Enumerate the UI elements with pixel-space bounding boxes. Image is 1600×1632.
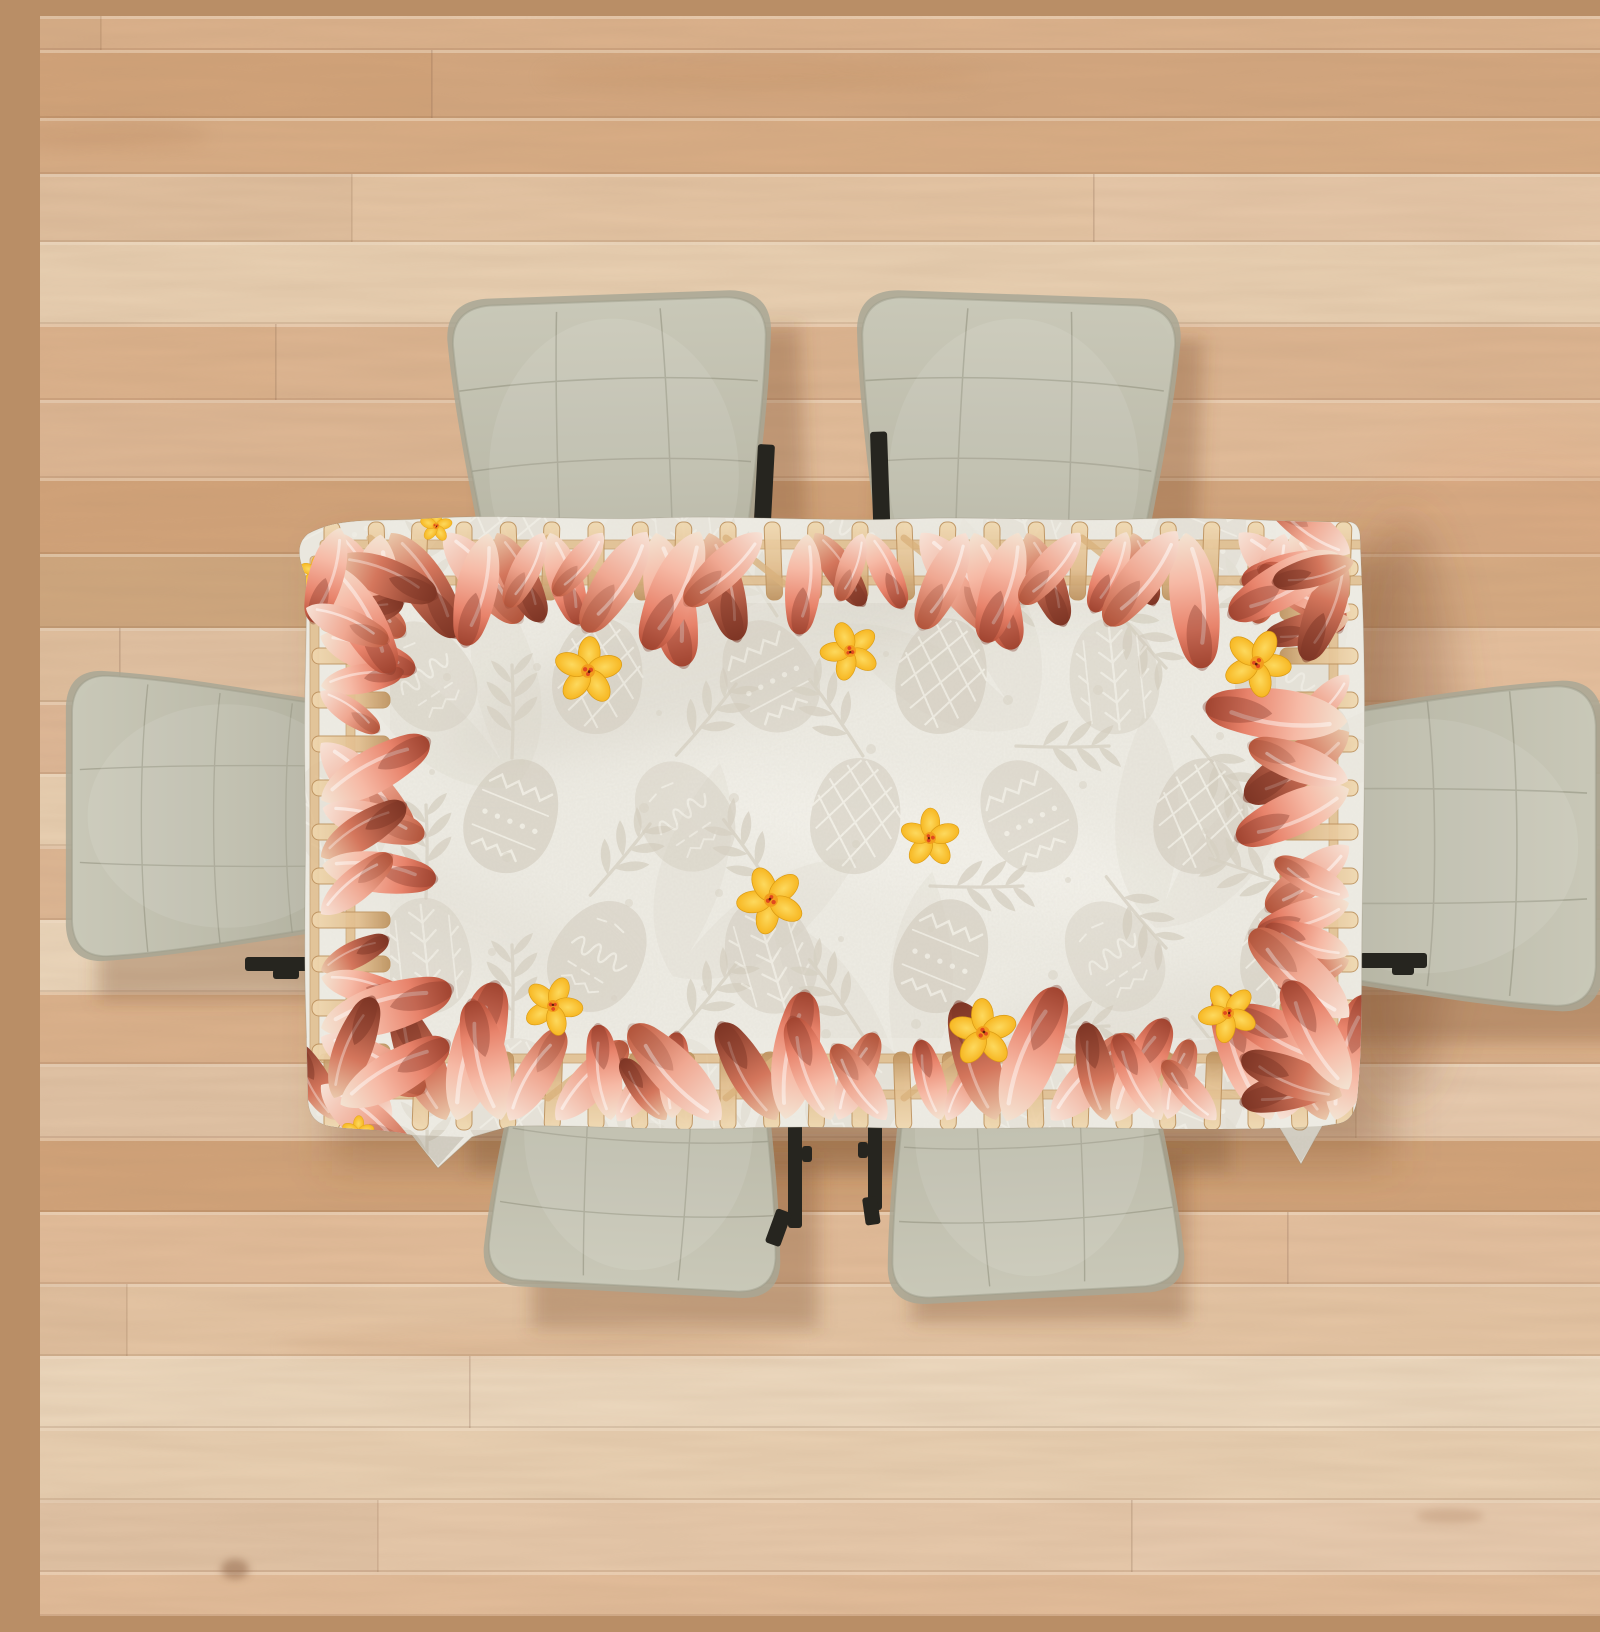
chair-frame-bar	[273, 969, 299, 979]
chair-frame-bar	[1392, 966, 1414, 975]
chair-frame-bar	[802, 1146, 812, 1162]
chair-frame-bar	[858, 1142, 868, 1158]
chair-frame-bar	[788, 1122, 802, 1228]
scene-canvas	[40, 16, 1600, 1616]
chair-frame-bar	[1360, 953, 1427, 968]
scene-photo	[40, 16, 1600, 1616]
chair-frame-bar	[245, 957, 309, 971]
chair-frame-bar	[870, 431, 890, 524]
